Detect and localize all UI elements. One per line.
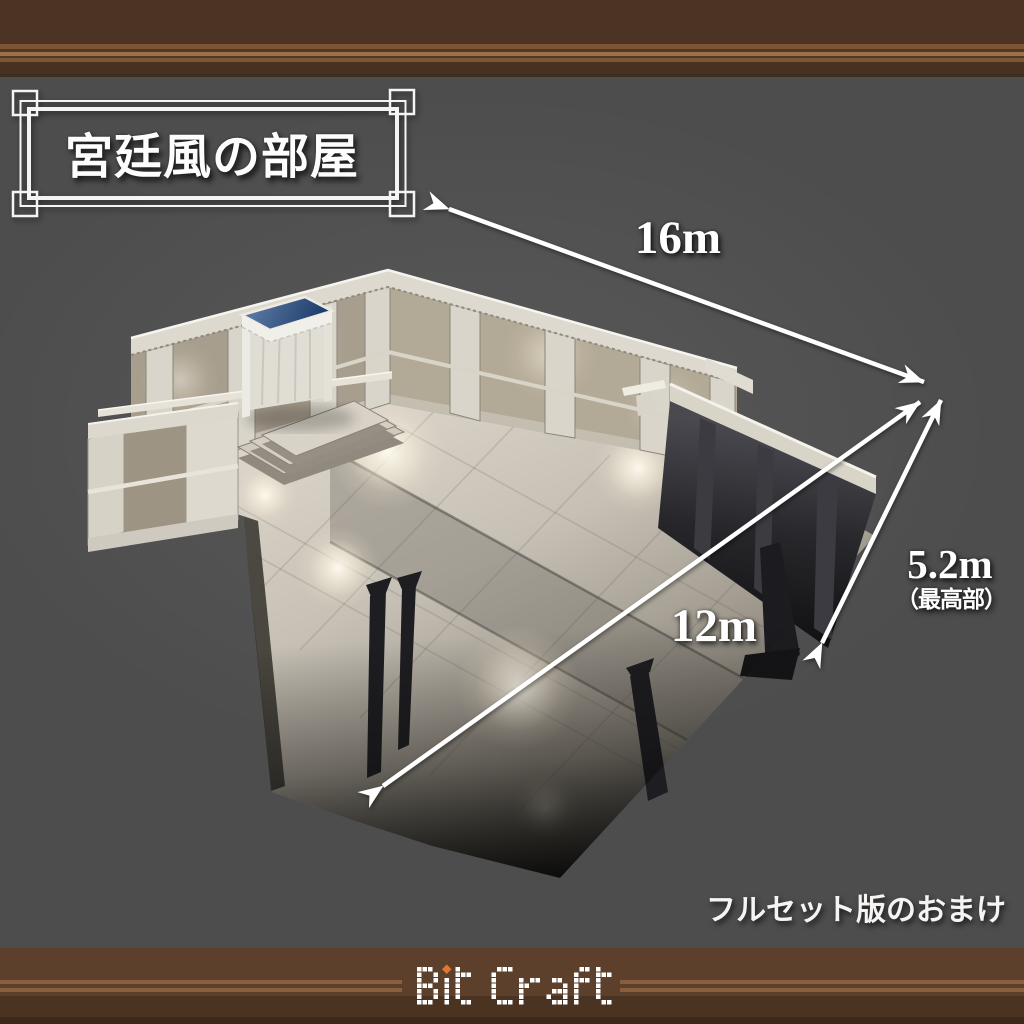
dimension-width-label: 16m bbox=[635, 211, 721, 265]
dimension-height-qualifier: （最高部） bbox=[896, 580, 1006, 614]
page-title: 宮廷風の部屋 bbox=[65, 117, 359, 187]
logo-rule-right bbox=[620, 980, 1024, 984]
bitcraft-logo bbox=[402, 960, 622, 1016]
logo-rule-left bbox=[0, 988, 402, 992]
logo-diamond-accent bbox=[442, 964, 452, 974]
product-image: 宮廷風の部屋 16m 12m 5.2m （最高部） フルセット版のおまけ bbox=[0, 0, 1024, 1024]
dimension-depth-label: 12m bbox=[671, 599, 757, 653]
bonus-note: フルセット版のおまけ bbox=[706, 885, 1006, 929]
logo-rule-left bbox=[0, 980, 402, 984]
logo-rule-right bbox=[620, 988, 1024, 992]
